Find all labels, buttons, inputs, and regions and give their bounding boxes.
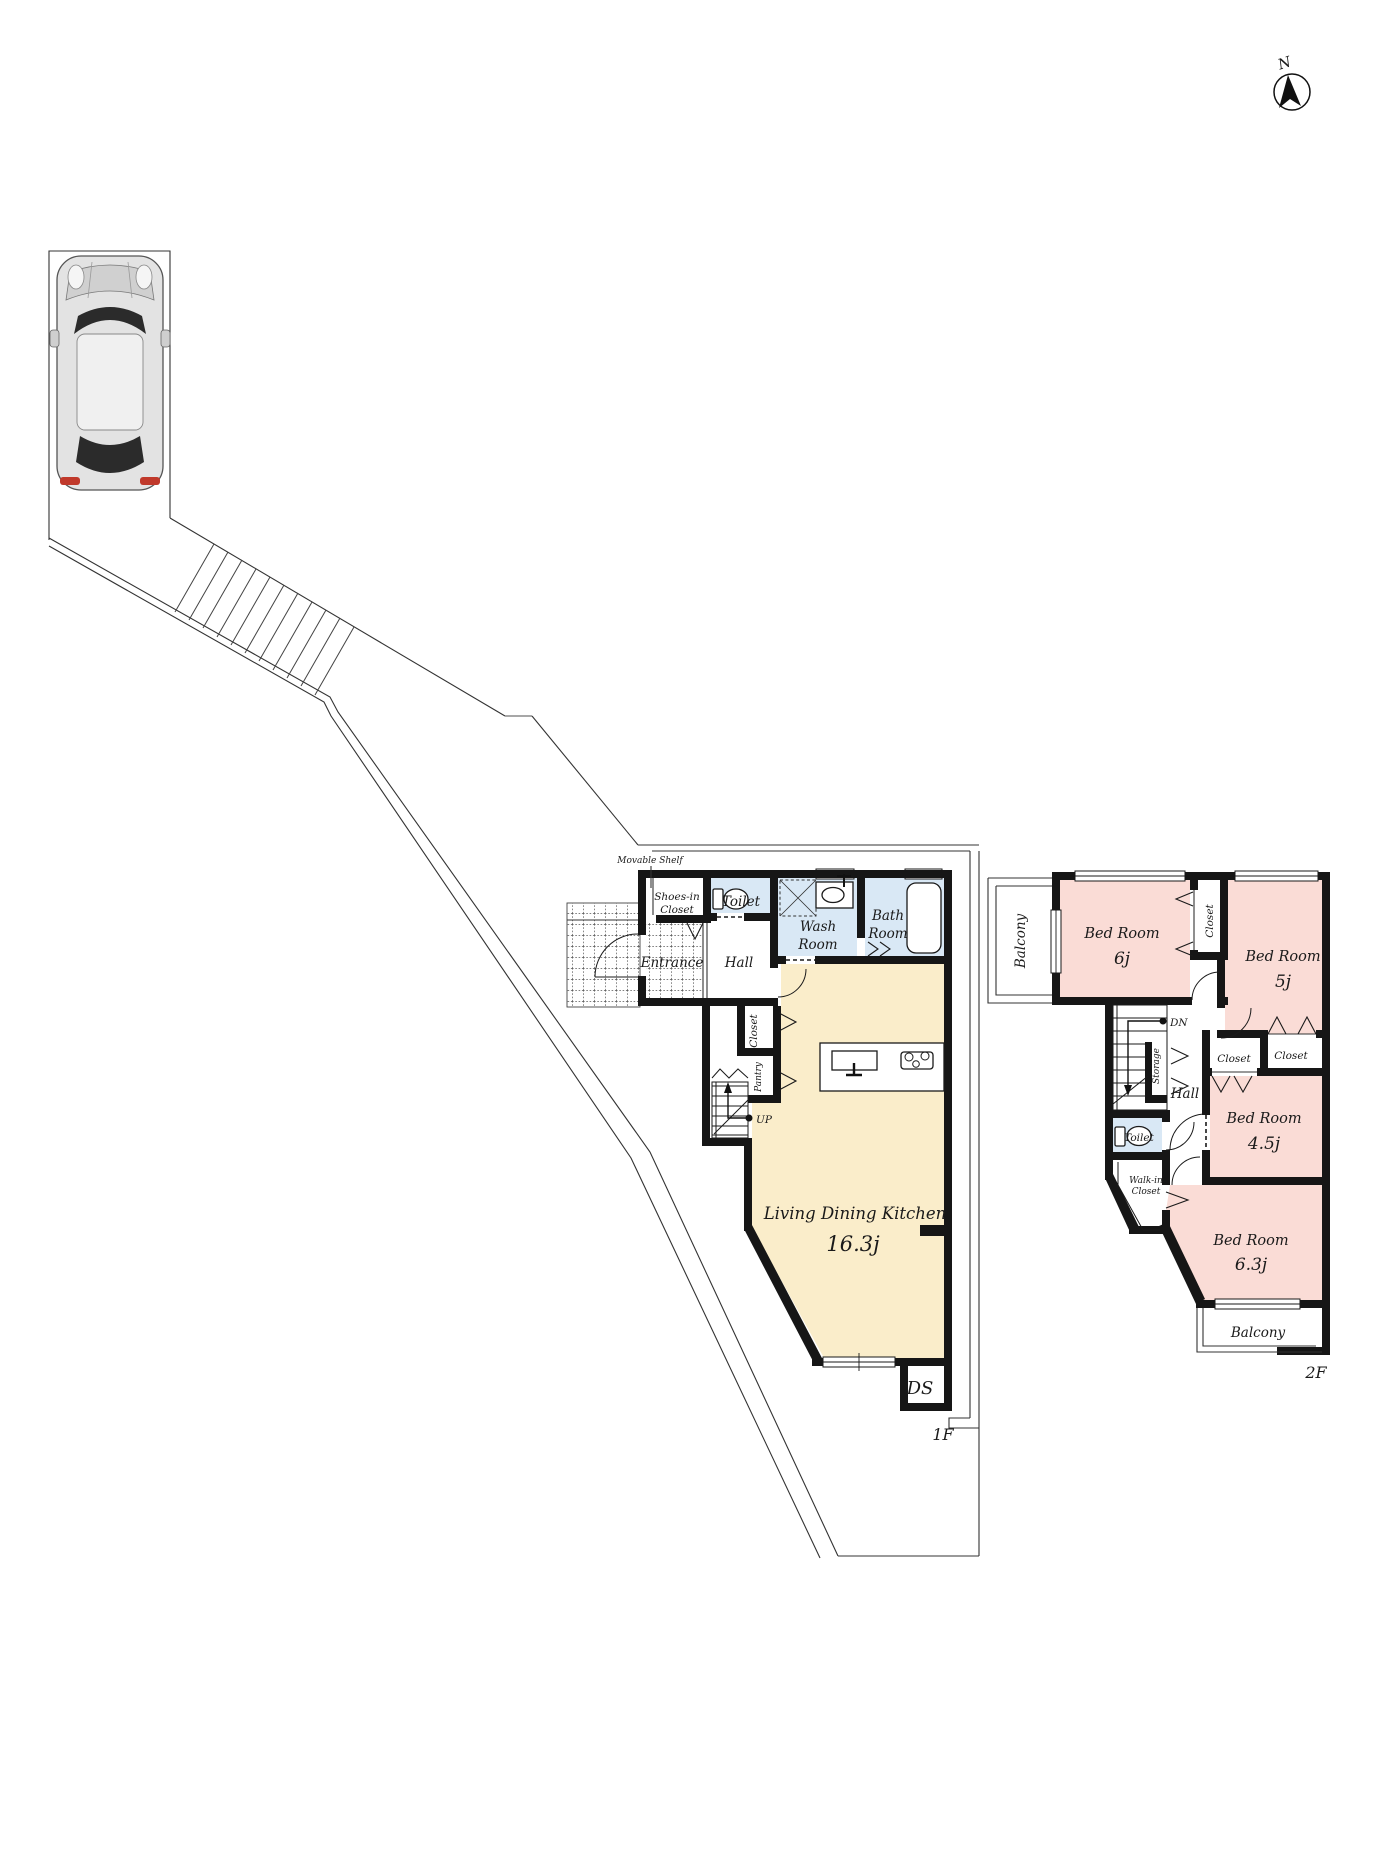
shoes-in-closet-label-2: Closet — [660, 904, 694, 916]
bedroom-6j-size: 6j — [1114, 949, 1131, 969]
floor-plan-page: N — [0, 0, 1375, 1875]
toilet-label-1f: Toilet — [722, 894, 761, 910]
wic-label-1: Walk-in — [1129, 1176, 1163, 1186]
compass: N — [1274, 54, 1310, 110]
entrance-step-line — [703, 923, 707, 998]
balcony-bottom-label: Balcony — [1230, 1325, 1286, 1341]
stairs-1f — [712, 1069, 753, 1138]
closet-label-1f: Closet — [748, 1013, 760, 1047]
floor2-label: 2F — [1304, 1363, 1327, 1382]
exterior-stairs — [175, 544, 354, 695]
bathroom-label-1: Bath — [871, 908, 904, 924]
hall-label-2f: Hall — [1170, 1086, 1199, 1102]
site-boundary-right — [949, 851, 979, 1556]
closet-left-label: Closet — [1217, 1053, 1251, 1065]
site-boundary-diagonal-1 — [49, 538, 838, 1556]
car-taillight-left — [60, 477, 80, 485]
bedroom-45j-size: 4.5j — [1247, 1134, 1281, 1154]
bedroom-6j-label: Bed Room — [1083, 926, 1159, 942]
floor1-label: 1F — [932, 1425, 954, 1444]
dn-label: DN — [1169, 1017, 1188, 1029]
bedroom-45j-label: Bed Room — [1225, 1111, 1301, 1127]
shoes-in-closet-label-1: Shoes-in — [654, 891, 700, 903]
bedroom-5j-size: 5j — [1275, 972, 1292, 992]
bedroom-63j-door-arc — [1172, 1157, 1200, 1185]
up-start-dot — [746, 1115, 753, 1122]
closet-right-label: Closet — [1274, 1050, 1308, 1062]
wic-label-2: Closet — [1132, 1187, 1161, 1197]
washroom-label-1: Wash — [800, 919, 836, 935]
approach-upper-rail — [170, 518, 505, 716]
toilet-label-2f: Toilet — [1124, 1132, 1154, 1144]
bathtub — [907, 883, 941, 953]
site-boundary-top — [638, 845, 979, 851]
bathroom-label-2: Room — [867, 926, 907, 942]
floor-plan-canvas: N — [0, 0, 1375, 1875]
car-taillight-right — [140, 477, 160, 485]
bedroom-63j-label: Bed Room — [1212, 1233, 1288, 1249]
hall-label-1f: Hall — [724, 955, 753, 971]
compass-north-label: N — [1275, 54, 1294, 74]
car-illustration — [50, 256, 170, 490]
storage-label: Storage — [1152, 1048, 1162, 1084]
entrance-porch — [567, 903, 640, 1007]
bedroom-5j-label: Bed Room — [1244, 949, 1320, 965]
dn-start-dot — [1160, 1018, 1167, 1025]
ldk-label: Living Dining Kitchen — [763, 1204, 947, 1223]
floor2-plan: Balcony Bed Room 6j Closet Bed Room 5j D… — [988, 871, 1330, 1382]
kitchen-island — [820, 1043, 944, 1091]
bedroom-63j-size: 6.3j — [1235, 1255, 1268, 1275]
compass-needle-icon — [1279, 75, 1301, 108]
ldk-size-label: 16.3j — [826, 1232, 880, 1256]
pantry-label: Pantry — [754, 1061, 764, 1093]
washroom-label-2: Room — [797, 937, 837, 953]
car-roof — [77, 334, 143, 430]
balcony-top-label: Balcony — [1013, 913, 1029, 969]
car-mirror-left — [50, 330, 59, 347]
bedroom-45j-door-arc — [1170, 1114, 1206, 1150]
bedroom-6j-door-arc — [1192, 972, 1220, 1000]
up-label: UP — [756, 1114, 773, 1126]
movable-shelf-label: Movable Shelf — [616, 856, 684, 866]
car-mirror-right — [161, 330, 170, 347]
entrance-label: Entrance — [640, 955, 704, 971]
ds-label: DS — [906, 1378, 934, 1399]
approach-lower-run — [532, 716, 638, 845]
closet-top-label: Closet — [1204, 903, 1216, 937]
